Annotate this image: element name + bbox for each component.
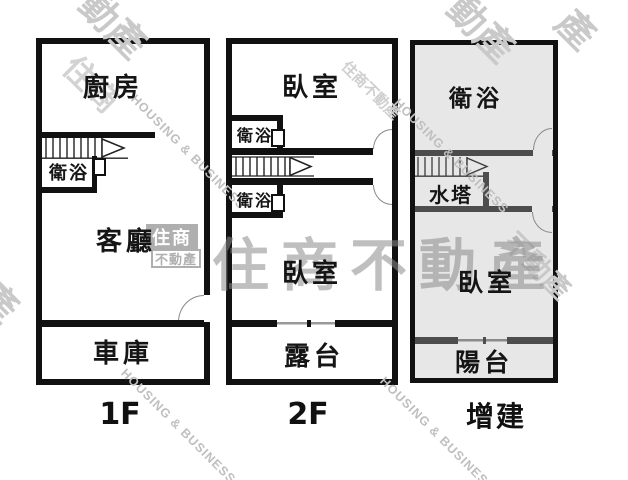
floor-label-1f: 1F xyxy=(70,396,170,432)
room-label-bath-upper-2f: 衛浴 xyxy=(233,124,277,144)
watermark-cjk-fragment: 產 xyxy=(0,436,7,480)
floor-label-2f: 2F xyxy=(258,396,358,432)
room-label-living: 客廳 xyxy=(76,224,176,254)
plan-annex-bath-door-gap xyxy=(533,150,552,156)
stairs-icon xyxy=(232,156,314,177)
plan-2f-terrace-window-1 xyxy=(277,320,307,327)
plan-annex-stairs xyxy=(415,157,491,177)
room-label-bath-1f: 衛浴 xyxy=(45,161,93,183)
plan-2f-upper-door-gap xyxy=(373,148,392,155)
floor-label-annex: 增建 xyxy=(446,398,546,432)
room-label-garage: 車庫 xyxy=(73,336,173,366)
plan-2f-lower-door-gap xyxy=(373,178,392,185)
plan-2f-corridor-top-wall xyxy=(232,148,392,155)
plan-1f-stairs xyxy=(42,138,128,159)
room-label-balcony: 陽台 xyxy=(434,346,534,376)
plan-1f-bath-door-leaf xyxy=(93,158,106,176)
stairs-icon xyxy=(415,157,491,177)
plan-annex-tank-right-wall xyxy=(483,172,489,206)
floor-plan-image: 動產 住商 動產 產 動產 住商不動產 不動產 產 HOUSING & BUSI… xyxy=(0,0,628,480)
plan-2f-upper-bath-top-wall xyxy=(232,115,283,121)
plan-1f-garage-wall xyxy=(42,320,204,327)
stairs-icon xyxy=(42,138,128,159)
room-label-terrace: 露台 xyxy=(264,339,364,369)
room-label-bedroom-bottom-2f: 臥室 xyxy=(262,256,362,286)
room-label-bedroom-annex: 臥室 xyxy=(437,266,537,296)
plan-2f-stairs xyxy=(232,156,314,177)
room-label-kitchen: 廚房 xyxy=(63,70,163,100)
plan-1f-living-door-gap xyxy=(204,295,210,322)
plan-2f-corridor-bottom-wall xyxy=(232,178,392,185)
plan-2f-lower-bath-bottom-wall xyxy=(232,212,283,218)
room-label-bath-lower-2f: 衛浴 xyxy=(233,189,277,209)
plan-1f-bath-bottom-wall xyxy=(42,187,97,193)
room-label-water-tank: 水塔 xyxy=(421,181,481,205)
watermark-cjk-fragment: 動產 xyxy=(0,240,34,333)
room-label-bath-annex: 衛浴 xyxy=(426,82,526,110)
plan-2f-terrace-window-2 xyxy=(311,320,335,327)
room-label-bedroom-top-2f: 臥室 xyxy=(262,70,362,100)
